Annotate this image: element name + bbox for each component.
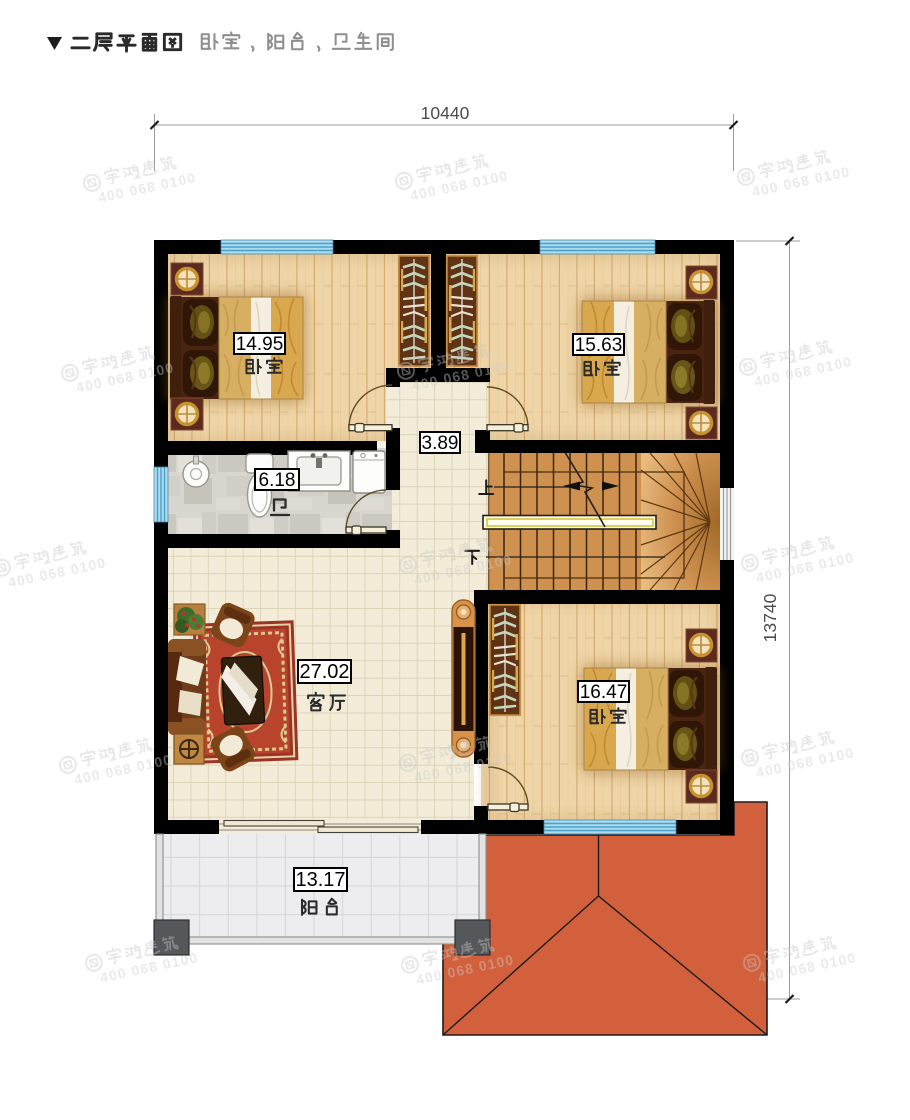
svg-text:3.89: 3.89: [422, 433, 459, 454]
svg-text:6.18: 6.18: [259, 470, 296, 491]
svg-text:13.17: 13.17: [295, 869, 345, 891]
svg-text:14.95: 14.95: [236, 334, 284, 355]
svg-text:16.47: 16.47: [580, 682, 628, 703]
svg-text:13740: 13740: [760, 593, 780, 642]
svg-text:27.02: 27.02: [299, 661, 349, 683]
svg-text:10440: 10440: [421, 103, 470, 123]
svg-text:15.63: 15.63: [575, 335, 623, 356]
